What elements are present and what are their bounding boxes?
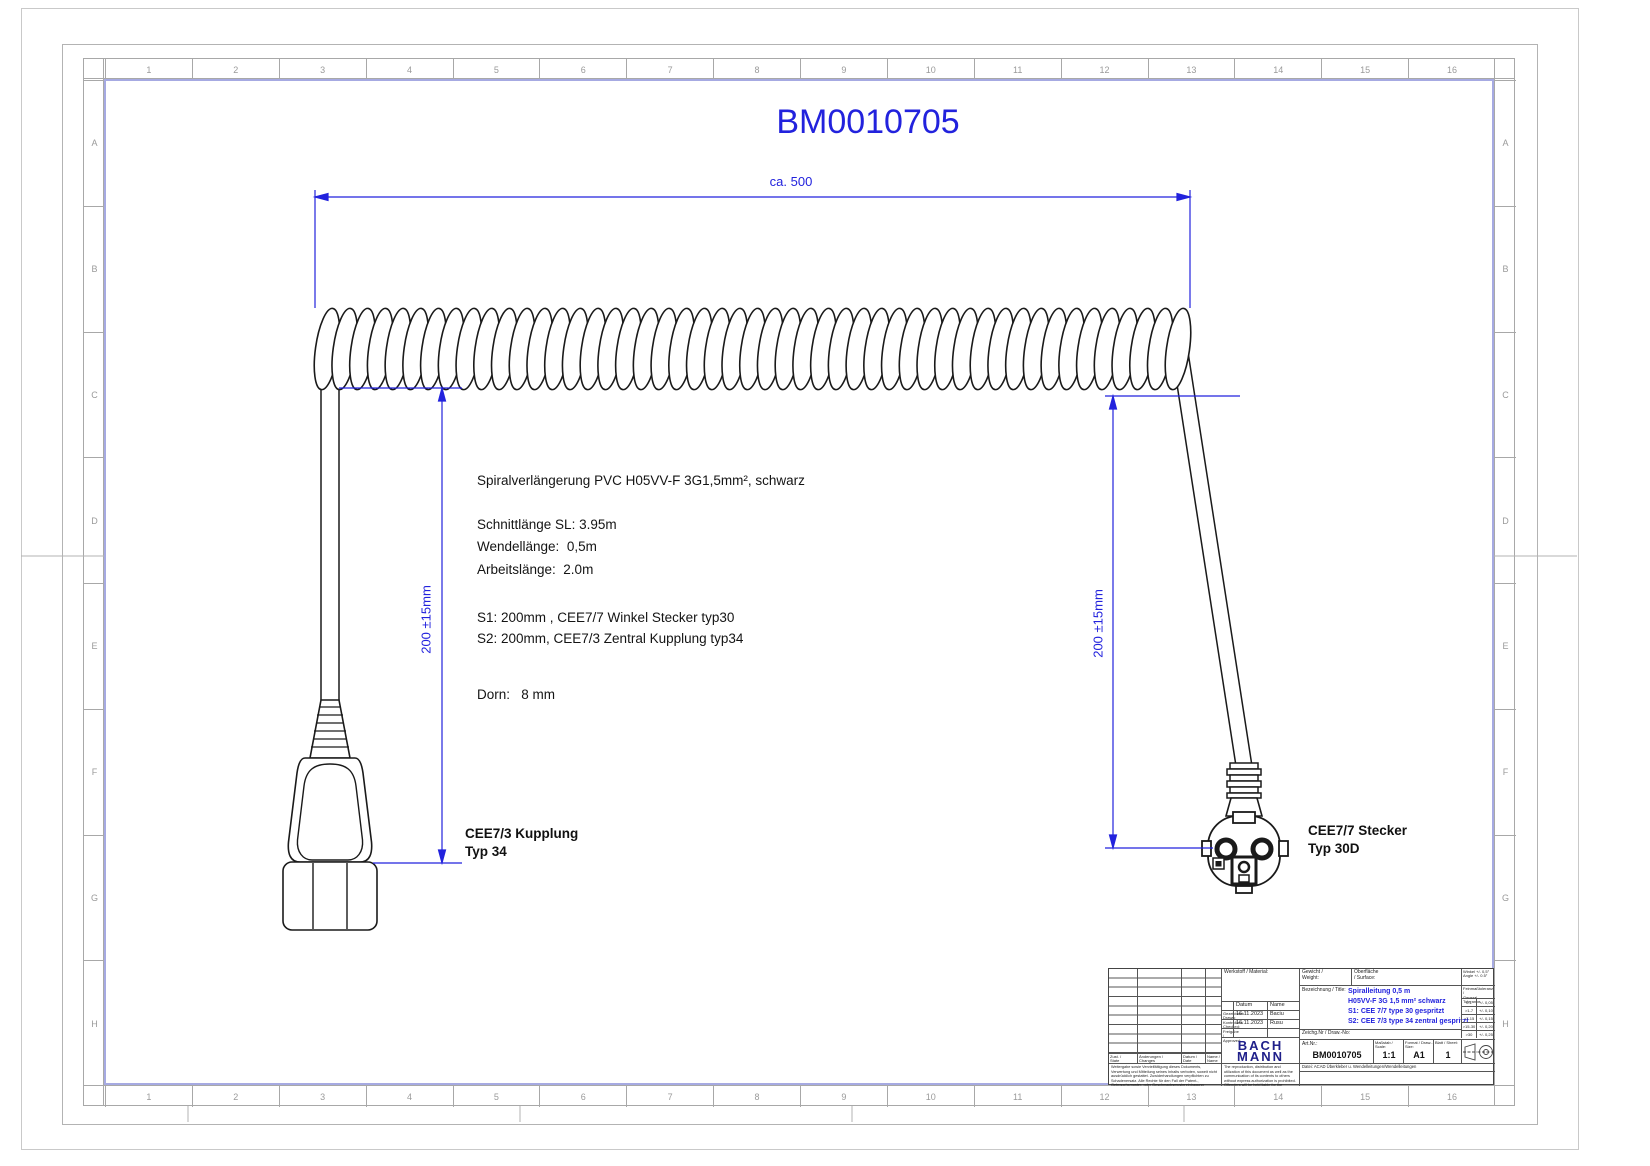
designation-line-4: S2: CEE 7/3 type 34 zentral gespritzt (1348, 1018, 1469, 1025)
note-dorn: Dorn: 8 mm (477, 687, 555, 702)
legal-text-german: Weitergabe sowie Vervielfältigung dieses… (1109, 1063, 1221, 1086)
designation-line-1: Spiralleitung 0,5 m (1348, 988, 1410, 995)
scale-value: 1:1 (1374, 1050, 1404, 1060)
signature-corner (1221, 1001, 1233, 1010)
scale-cell: Maßstab / Scale: 1:1 (1373, 1039, 1403, 1063)
scale-label: Maßstab / Scale: (1374, 1040, 1403, 1050)
left-connector-cee73 (283, 700, 377, 930)
sheet-cell: Blatt / Sheet: 1 (1433, 1039, 1461, 1063)
weight-cell: Gewicht / Weight: (1299, 969, 1351, 985)
drawn-date: 16.11.2023 (1233, 1010, 1267, 1019)
general-tolerance-header: Feinmaßtoleranz / General Tolerance (1461, 985, 1495, 998)
right-connector-cee77 (1202, 763, 1288, 893)
format-label: Format / Draw.-Size: (1404, 1040, 1433, 1050)
approved-label: Freigabe / Approved: (1221, 1028, 1233, 1037)
right-cable (1172, 352, 1252, 766)
tolerance-cell: >30 (1461, 1030, 1476, 1038)
surface-cell: Oberfläche / Surface: (1351, 969, 1461, 985)
dim-label-overall: ca. 500 (741, 174, 841, 189)
format-cell: Format / Draw.-Size: A1 (1403, 1039, 1433, 1063)
left-strain-relief (310, 700, 350, 758)
plug-bottom-tab (1236, 886, 1252, 893)
note-s1: S1: 200mm , CEE7/7 Winkel Stecker typ30 (477, 610, 734, 625)
plug-earth-contact (1239, 862, 1249, 872)
plug-right-ear (1279, 841, 1288, 856)
note-s2: S2: 200mm, CEE7/3 Zentral Kupplung typ34 (477, 631, 743, 646)
spare-cell (1299, 1071, 1495, 1086)
tolerance-cell: +/- 0,10 (1476, 1006, 1495, 1014)
tolerance-cell: 0-1 (1461, 998, 1476, 1006)
note-description: Spiralverlängerung PVC H05VV-F 3G1,5mm²,… (477, 473, 805, 488)
legal-text-english: The reproduction, distribution and utili… (1221, 1063, 1299, 1086)
title-block: Zust. / State Änderungen / Changes Datum… (1108, 968, 1494, 1085)
designation-label: Bezeichnung / Title: (1300, 987, 1346, 994)
projection-symbol-cell (1461, 1039, 1495, 1063)
tolerance-cell: >1-7 (1461, 1006, 1476, 1014)
dimension-overall (315, 190, 1190, 308)
angle-tolerance-cell: Winkel +/- 0,5° Angle +/- 0.5° (1461, 969, 1495, 985)
drawno-cell: Zeichg.Nr / Draw.-No: (1299, 1029, 1461, 1039)
left-connector-label: CEE7/3 Kupplung Typ 34 (465, 825, 578, 861)
sheet-value: 1 (1434, 1050, 1462, 1060)
left-cable (321, 352, 339, 700)
tolerance-cell: +/- 0,20 (1476, 1022, 1495, 1030)
checked-name: Rusu (1267, 1019, 1299, 1028)
tolerance-cell: +/- 0,25 (1476, 1030, 1495, 1038)
drawing-sheet: 12345678910111213141516 1234567891011121… (0, 0, 1650, 1166)
drawn-label: Gezeichnet/ Drawn: (1221, 1010, 1233, 1019)
plug-top-tab (1233, 812, 1255, 823)
projection-symbol-icon (1462, 1040, 1496, 1064)
designation-line-2: H05VV-F 3G 1,5 mm² schwarz (1348, 998, 1446, 1005)
brand-line2: MANN (1237, 1051, 1284, 1062)
note-coil-length: Wendellänge: 0,5m (477, 539, 597, 554)
tolerance-cell: +/- 0,05 (1476, 998, 1495, 1006)
tolerance-cell: +/- 0,15 (1476, 1014, 1495, 1022)
tolerance-cell: >7-15 (1461, 1014, 1476, 1022)
right-strain-relief-ribs (1227, 763, 1261, 798)
artno-cell: Art.Nr.: BM0010705 (1299, 1039, 1373, 1063)
rev-header-changes: Änderungen / Changes (1137, 1053, 1181, 1063)
file-cell: Datei: ACAD Überkleber u. Wendelleitunge… (1299, 1063, 1495, 1071)
format-value: A1 (1404, 1050, 1434, 1060)
artno-label: Art.Nr.: (1300, 1041, 1318, 1048)
plug-pin-right (1253, 840, 1271, 858)
artno-value: BM0010705 (1300, 1050, 1374, 1060)
rev-header-date: Datum / Date (1181, 1053, 1205, 1063)
spiral-coil (310, 307, 1195, 391)
designation-cell: Bezeichnung / Title: Spiralleitung 0,5 m… (1299, 985, 1461, 1029)
tolerance-cell: >15-30 (1461, 1022, 1476, 1030)
name-column-header: Name (1267, 1001, 1299, 1010)
checked-label: Kontrolliert/ Checked: (1221, 1019, 1233, 1028)
sheet-label: Blatt / Sheet: (1434, 1040, 1461, 1045)
note-cut-length: Schnittlänge SL: 3.95m (477, 517, 617, 532)
rev-header-state: Zust. / State (1109, 1053, 1137, 1063)
rev-header-name: Name / Name (1205, 1053, 1221, 1063)
designation-line-3: S1: CEE 7/7 type 30 gespritzt (1348, 1008, 1444, 1015)
dimension-right-tail (1105, 396, 1240, 848)
right-connector-label: CEE7/7 Stecker Typ 30D (1308, 822, 1407, 858)
bachmann-logo: BACH MANN (1221, 1037, 1299, 1063)
material-cell: Werkstoff / Material: (1221, 969, 1299, 1001)
checked-date: 16.11.2023 (1233, 1019, 1267, 1028)
dim-label-right-tail: 200 ±15mm (1091, 574, 1106, 674)
date-column-header: Datum (1233, 1001, 1267, 1010)
dim-label-left-tail: 200 ±15mm (419, 570, 434, 670)
plug-pin-left (1217, 840, 1235, 858)
drawn-name: Baciu (1267, 1010, 1299, 1019)
left-connector-cap (283, 862, 377, 930)
page-title: BM0010705 (668, 103, 1068, 142)
note-working-length: Arbeitslänge: 2.0m (477, 562, 593, 577)
